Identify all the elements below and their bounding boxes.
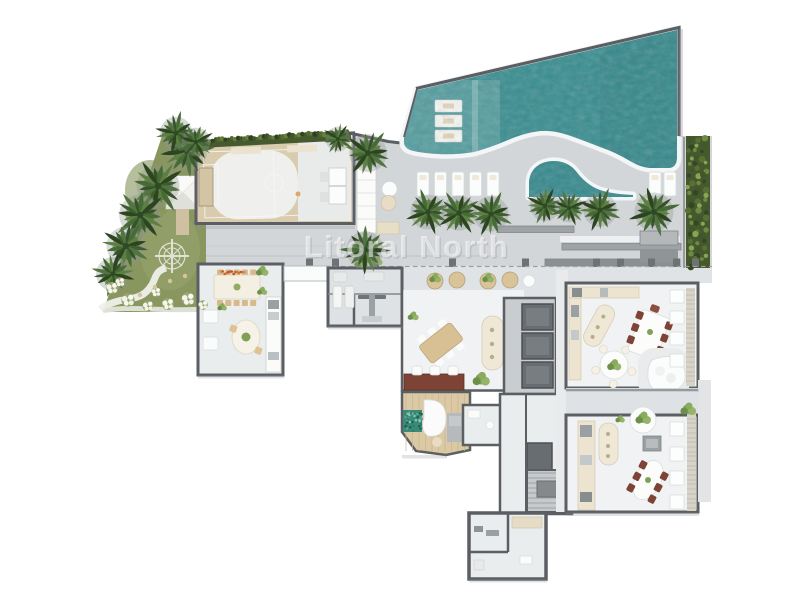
svg-text:Litoral North: Litoral North	[304, 229, 510, 264]
